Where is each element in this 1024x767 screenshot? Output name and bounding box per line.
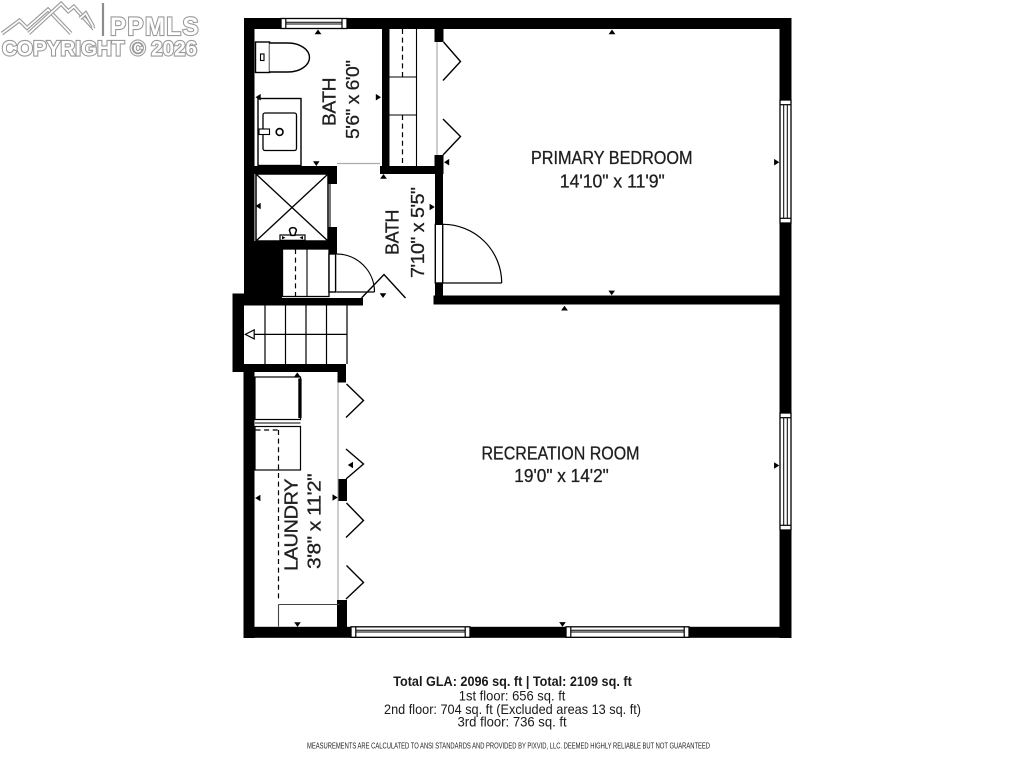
svg-text:Total GLA: 2096 sq. ft | Total: Total GLA: 2096 sq. ft | Total: 2109 sq.… [393,673,632,689]
svg-text:BATH: BATH [319,78,340,126]
svg-text:BATH: BATH [382,210,403,255]
svg-text:19'0" x 14'2": 19'0" x 14'2" [514,465,609,486]
svg-text:14'10" x 11'9": 14'10" x 11'9" [560,170,665,191]
svg-text:3rd floor: 736 sq. ft: 3rd floor: 736 sq. ft [458,714,567,730]
svg-text:MEASUREMENTS ARE CALCULATED TO: MEASUREMENTS ARE CALCULATED TO ANSI STAN… [307,740,710,750]
svg-text:COPYRIGHT © 2026: COPYRIGHT © 2026 [2,38,197,61]
svg-text:3'8" x 11'2": 3'8" x 11'2" [304,474,325,569]
svg-text:RECREATION ROOM: RECREATION ROOM [482,443,640,464]
svg-text:7'10" x 5'5": 7'10" x 5'5" [407,188,428,279]
svg-text:LAUNDRY: LAUNDRY [281,479,302,571]
svg-text:PRIMARY BEDROOM: PRIMARY BEDROOM [531,147,693,168]
svg-text:5'6" x 6'0": 5'6" x 6'0" [342,61,363,140]
